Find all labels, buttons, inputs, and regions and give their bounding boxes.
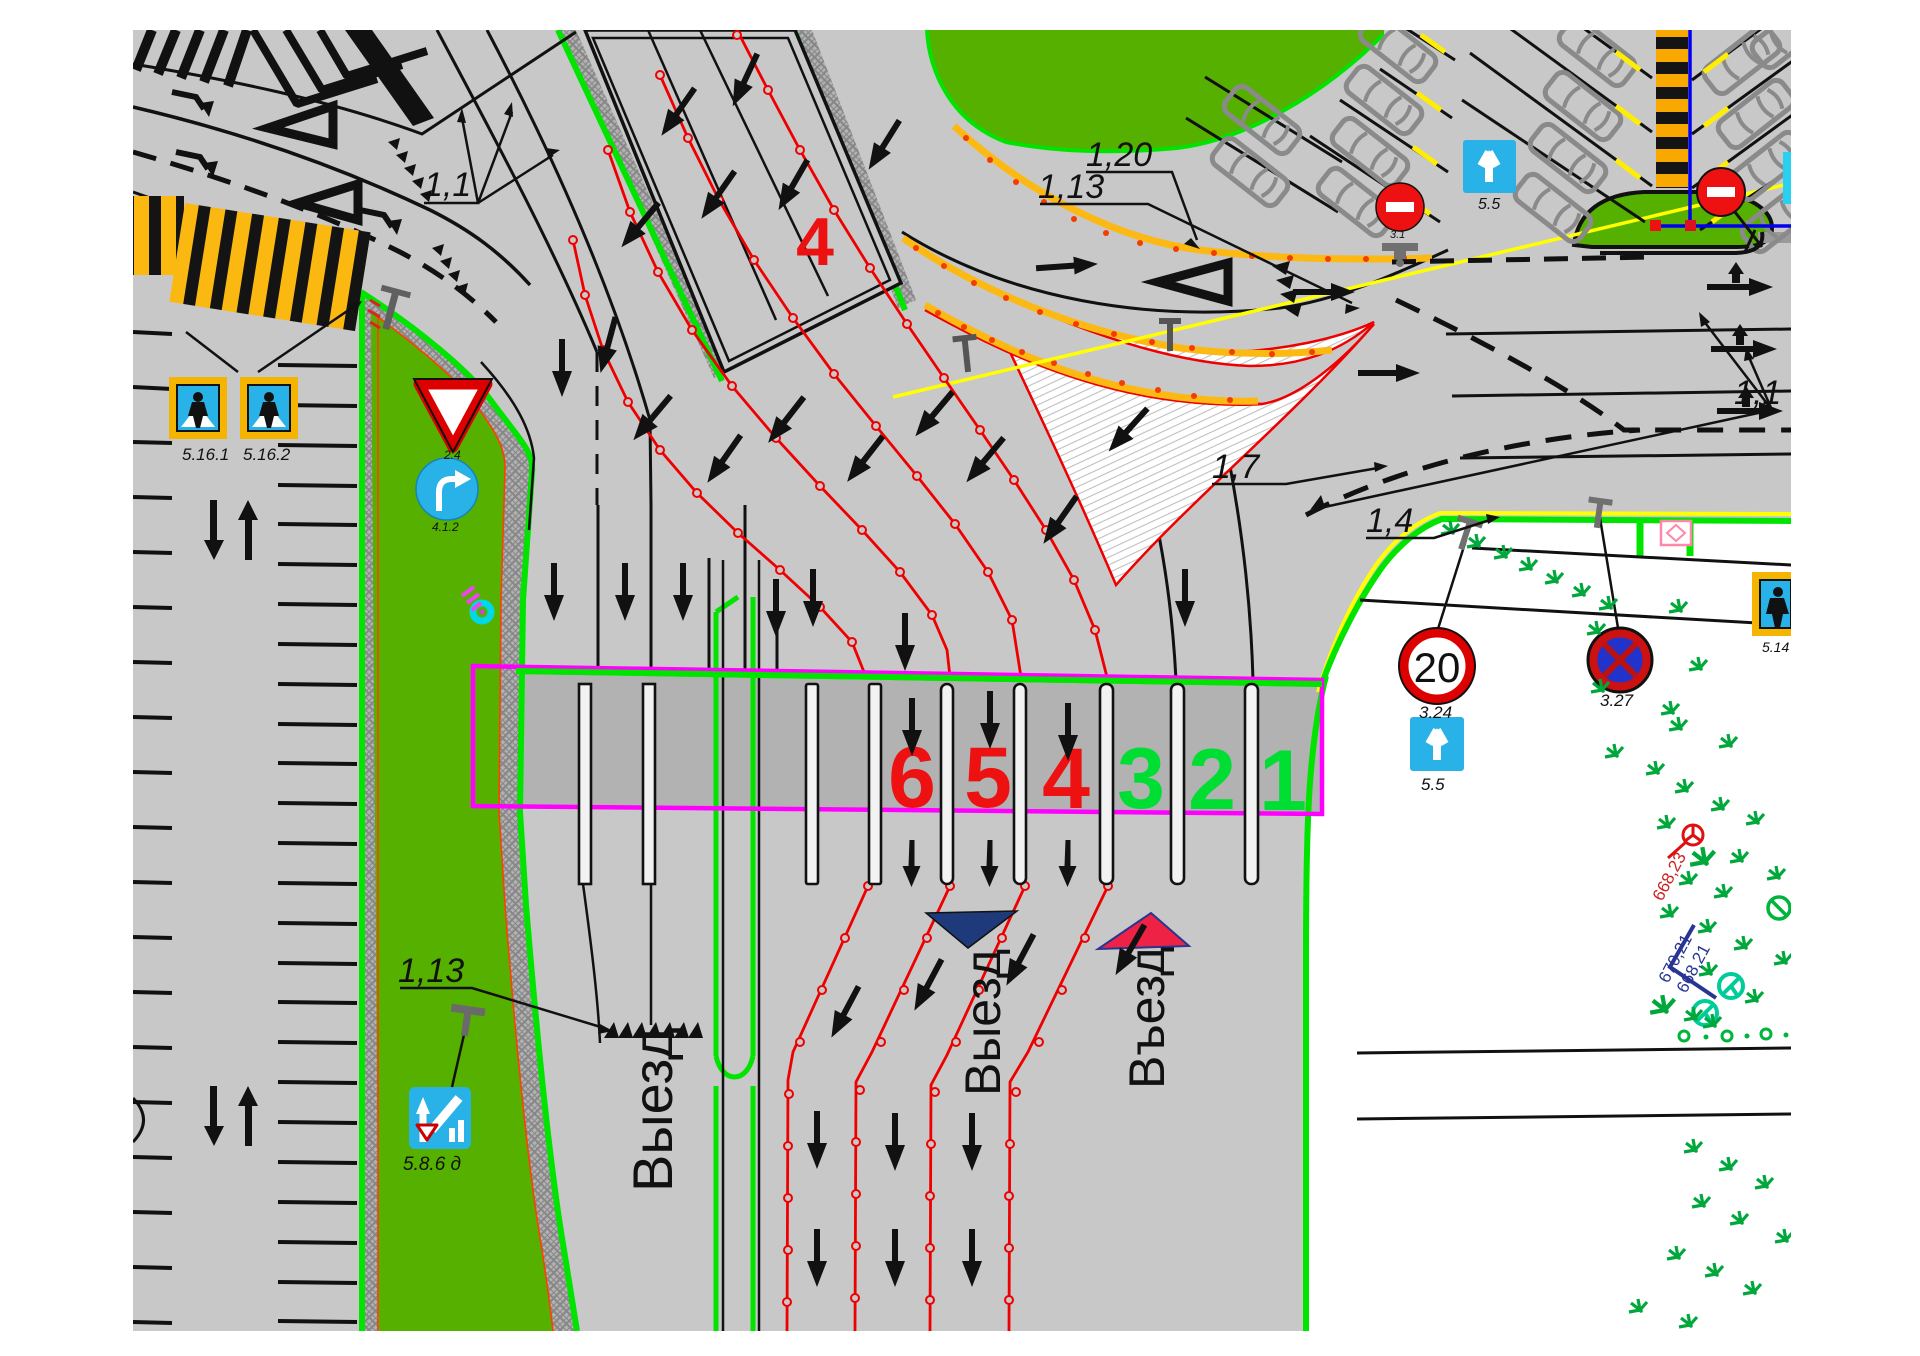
svg-text:Выезд: Выезд (955, 949, 1011, 1096)
svg-text:1,4: 1,4 (1366, 502, 1413, 540)
svg-text:3.27: 3.27 (1600, 691, 1634, 710)
svg-text:3.1: 3.1 (1390, 229, 1405, 241)
svg-text:3: 3 (1117, 731, 1165, 827)
svg-text:1,13: 1,13 (1038, 168, 1104, 206)
svg-text:4: 4 (796, 204, 834, 280)
svg-text:1,13: 1,13 (398, 952, 464, 990)
svg-text:1,7: 1,7 (1212, 448, 1260, 486)
svg-text:3.24: 3.24 (1419, 703, 1452, 722)
svg-text:Въезд: Въезд (1119, 947, 1175, 1089)
svg-text:5.5: 5.5 (1421, 775, 1445, 794)
svg-text:5.16.1: 5.16.1 (182, 445, 229, 464)
svg-text:20: 20 (1414, 644, 1461, 691)
svg-text:2.4: 2.4 (443, 448, 461, 462)
svg-text:5.16.2: 5.16.2 (243, 445, 291, 464)
svg-text:5.5: 5.5 (1478, 196, 1500, 213)
svg-text:4.1.2: 4.1.2 (432, 520, 459, 534)
svg-text:5.14: 5.14 (1762, 639, 1789, 655)
svg-text:Выезд: Выезд (621, 1027, 684, 1192)
svg-text:5.8.6 д: 5.8.6 д (403, 1154, 461, 1175)
svg-text:1: 1 (1259, 733, 1307, 829)
svg-text:1,1: 1,1 (424, 166, 471, 204)
svg-text:5: 5 (964, 730, 1012, 826)
svg-text:2: 2 (1188, 732, 1236, 828)
